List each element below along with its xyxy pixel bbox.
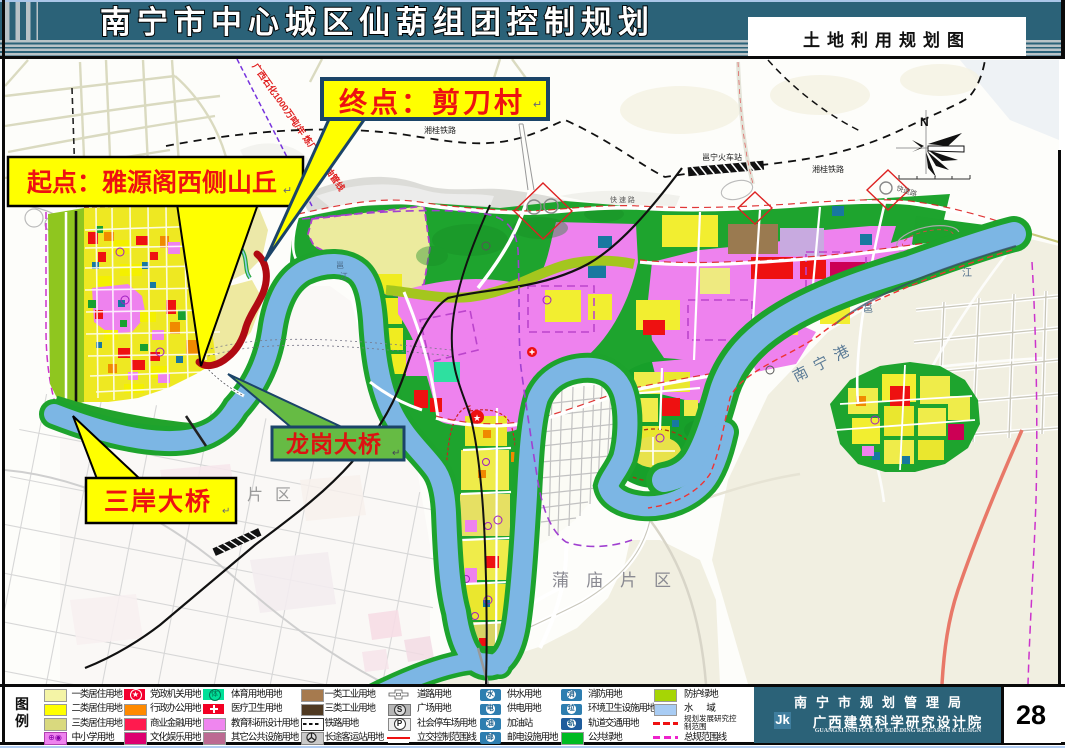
svg-text:江: 江 <box>962 267 972 279</box>
svg-text:湘桂铁路: 湘桂铁路 <box>812 164 844 174</box>
svg-text:快 速 路: 快 速 路 <box>610 195 635 204</box>
svg-text:↵: ↵ <box>392 448 400 459</box>
svg-text:龙岗大桥: 龙岗大桥 <box>286 431 382 457</box>
svg-text:邕: 邕 <box>336 260 344 270</box>
svg-text:三岸大桥: 三岸大桥 <box>104 488 212 516</box>
svg-text:↵: ↵ <box>533 99 542 111</box>
svg-text:邕宁火车站: 邕宁火车站 <box>702 152 742 162</box>
svg-text:终点：剪刀村: 终点：剪刀村 <box>339 86 525 118</box>
svg-text:邕: 邕 <box>863 302 873 315</box>
svg-text:↵: ↵ <box>283 185 292 197</box>
svg-text:片区: 片区 <box>247 486 303 504</box>
svg-text:N: N <box>920 115 929 129</box>
svg-text:↵: ↵ <box>222 506 230 517</box>
svg-text:湘桂铁路: 湘桂铁路 <box>424 125 456 135</box>
svg-text:蒲庙片区: 蒲庙片区 <box>552 571 688 590</box>
svg-text:★: ★ <box>473 413 481 423</box>
svg-text:起点：雅源阁西侧山丘: 起点：雅源阁西侧山丘 <box>27 168 277 197</box>
svg-text:江: 江 <box>340 272 348 281</box>
